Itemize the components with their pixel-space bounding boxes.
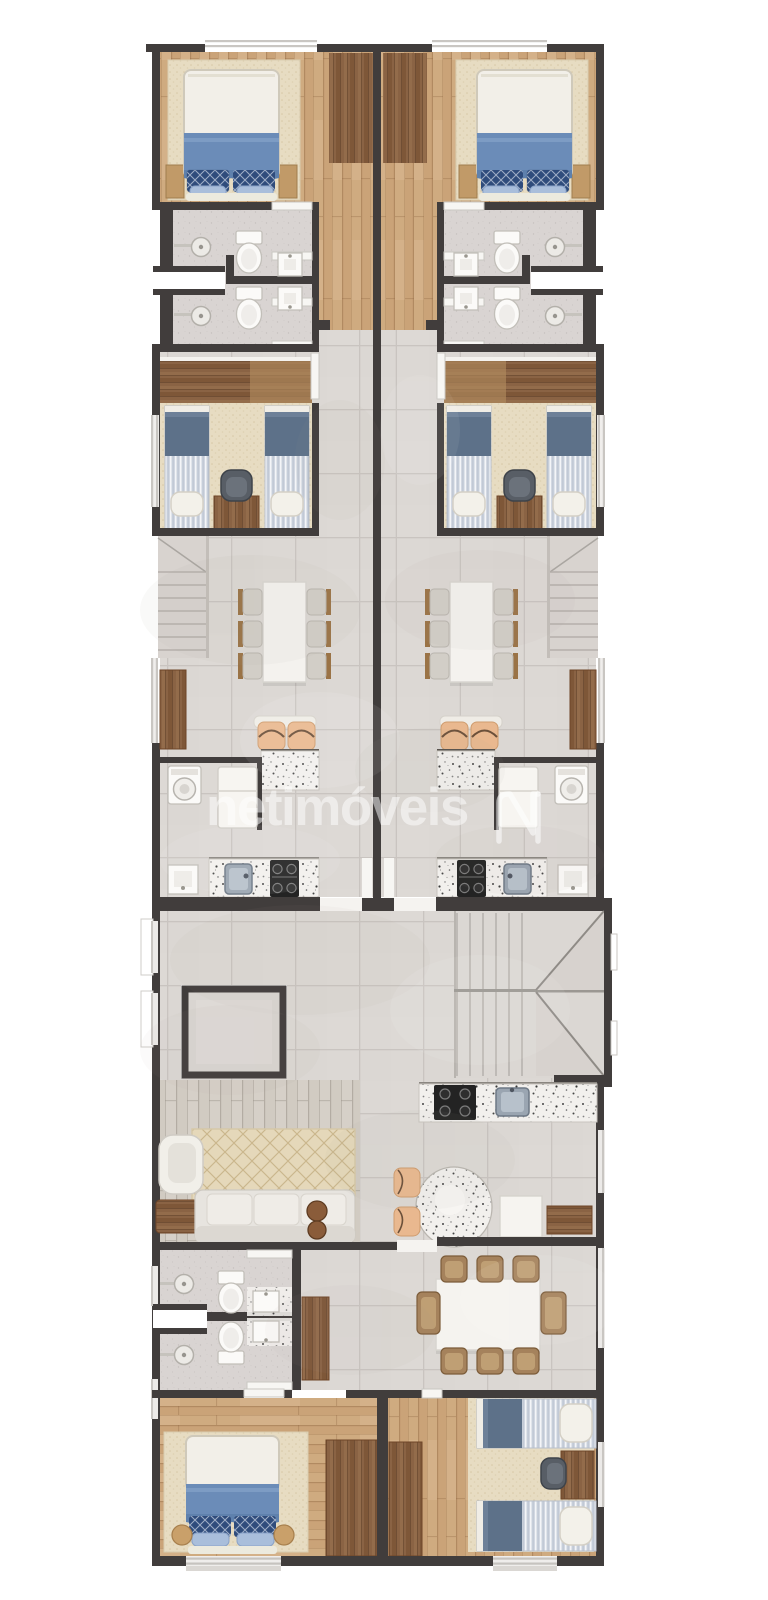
svg-text:netimóveis: netimóveis [206, 778, 468, 837]
